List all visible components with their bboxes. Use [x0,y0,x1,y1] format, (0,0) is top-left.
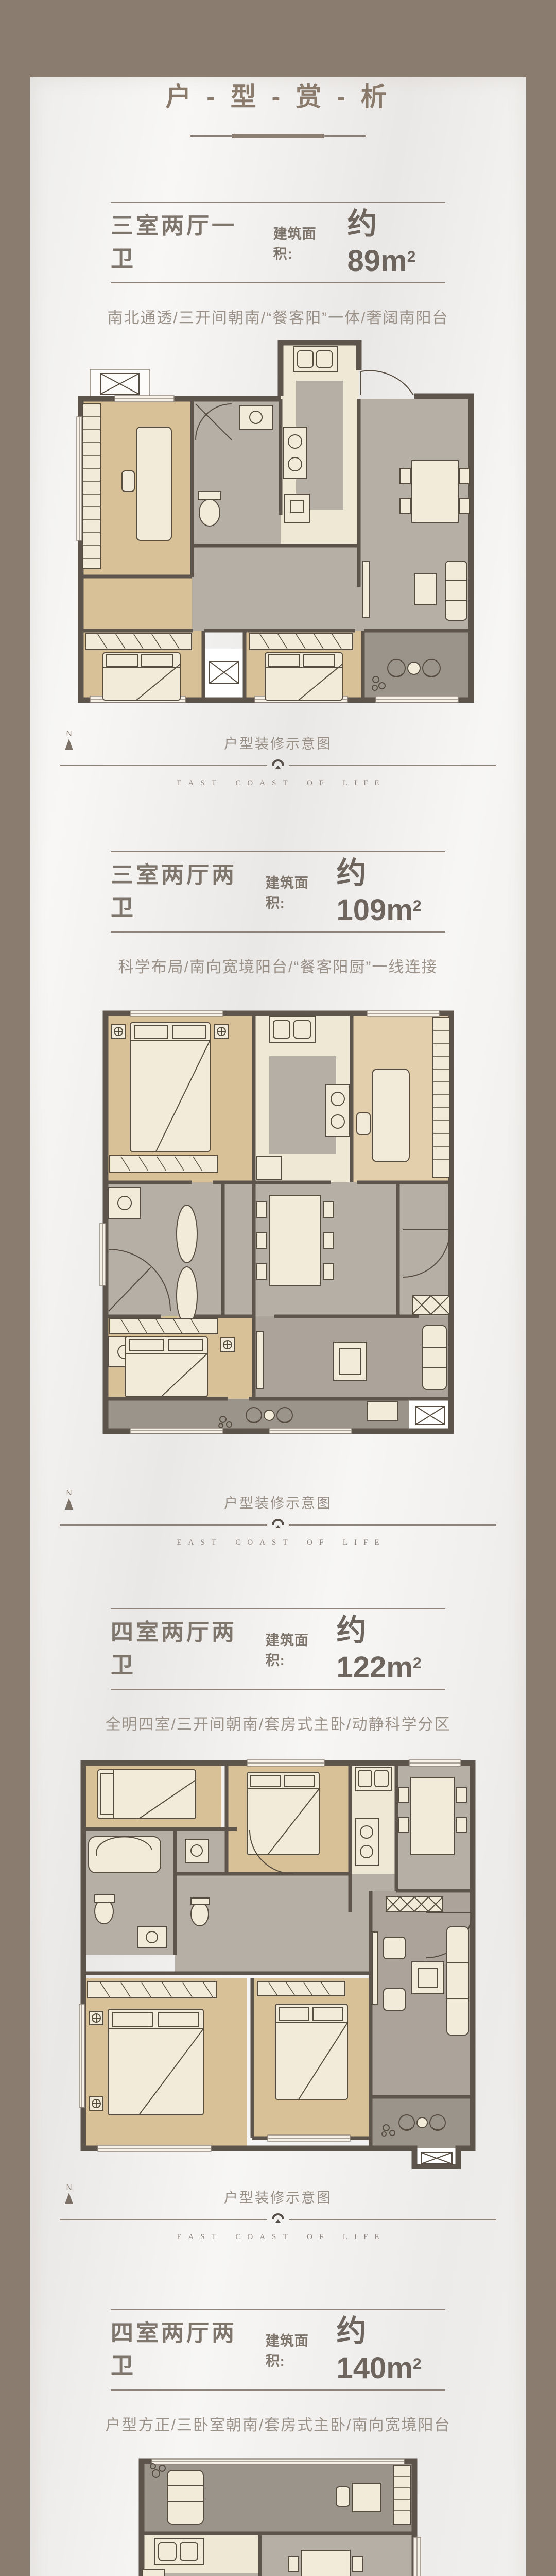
plan-caption: 户型装修示意图 [30,2190,526,2206]
caption-divider [60,1519,496,1531]
compass-north-icon: N [63,2183,75,2204]
floor-plan-122 [77,1757,479,2169]
title-divider [190,134,366,138]
plan-type-title: 三室两厅一卫 [111,210,262,276]
divider-line-left [60,765,267,766]
tagline: EAST COAST OF LIFE [30,778,526,788]
section-plan-109: 三室两厅两卫 建筑面积: 约109m2 科学布局/南向宽境阳台/“餐客阳厨”一线… [30,851,526,1548]
floor-plan-109-wrap [30,1007,526,1437]
area-superscript: 2 [413,1655,422,1672]
plan-caption: 户型装修示意图 [30,736,526,752]
section-header: 三室两厅一卫 建筑面积: 约89m2 [111,202,445,283]
plan-description: 全明四室/三开间朝南/套房式主卧/动静科学分区 [30,1716,526,1734]
plan-caption: 户型装修示意图 [30,1495,526,1512]
compass-label: N [63,2183,75,2192]
divider-thick-bar [232,134,324,138]
brand-mark-icon [270,759,286,772]
area-value: 约109m2 [336,857,445,927]
section-header: 三室两厅两卫 建筑面积: 约109m2 [111,851,445,933]
area-superscript: 2 [413,2355,422,2372]
section-header: 四室两厅两卫 建筑面积: 约140m2 [111,2309,445,2391]
tagline: EAST COAST OF LIFE [30,2232,526,2242]
poster-card: 户 - 型 - 赏 - 析 三室两厅一卫 建筑面积: 约89m2 南北通透/三开… [30,77,526,2576]
caption-divider [60,2213,496,2226]
area-label: 建筑面积: [273,223,336,263]
plan-description: 南北通透/三开间朝南/“餐客阳”一体/奢阔南阳台 [30,309,526,327]
floor-plan-89-wrap [30,340,526,703]
plan-caption-row: N 户型装修示意图 EAST COAST OF LIFE [30,2190,526,2242]
area-value: 约89m2 [347,208,445,278]
compass-north-icon: N [63,730,75,750]
plan-description: 科学布局/南向宽境阳台/“餐客阳厨”一线连接 [30,958,526,976]
plan-caption-row: N 户型装修示意图 EAST COAST OF LIFE [30,1495,526,1548]
floor-plan-140-wrap [30,2455,526,2576]
compass-arrow-icon [65,2193,73,2204]
poster: { "page": { "background_color": "#8a7c6f… [0,0,556,2576]
divider-line-right [289,1524,496,1526]
divider-line-right [289,765,496,766]
brand-mark-icon [270,2213,286,2226]
floor-plan-122-wrap [30,1757,526,2169]
brand-mark-icon [270,1519,286,1531]
section-plan-122: 四室两厅两卫 建筑面积: 约122m2 全明四室/三开间朝南/套房式主卧/动静科… [30,1608,526,2242]
section-plan-89: 三室两厅一卫 建筑面积: 约89m2 南北通透/三开间朝南/“餐客阳”一体/奢阔… [30,202,526,788]
area-value: 约140m2 [336,2315,445,2385]
divider-line-left [60,1524,267,1526]
plan-type-title: 四室两厅两卫 [111,1616,254,1682]
section-plan-140: 四室两厅两卫 建筑面积: 约140m2 户型方正/三卧室朝南/套房式主卧/南向宽… [30,2309,526,2576]
tagline: EAST COAST OF LIFE [30,1537,526,1548]
compass-label: N [63,730,75,738]
caption-divider [60,759,496,772]
plan-type-title: 三室两厅两卫 [111,859,254,925]
floor-plan-109 [99,1007,457,1437]
area-superscript: 2 [407,248,416,265]
area-label: 建筑面积: [266,872,325,912]
page-title: 户 - 型 - 赏 - 析 [30,77,526,110]
area-label: 建筑面积: [266,1629,325,1669]
plan-caption-row: N 户型装修示意图 EAST COAST OF LIFE [30,736,526,788]
compass-arrow-icon [65,739,73,750]
compass-label: N [63,1489,75,1497]
floor-plan-89 [75,340,481,703]
plan-type-title: 四室两厅两卫 [111,2317,254,2383]
area-value: 约122m2 [336,1614,445,1684]
divider-line-left [60,2219,267,2220]
plan-description: 户型方正/三卧室朝南/套房式主卧/南向宽境阳台 [30,2416,526,2434]
compass-north-icon: N [63,1489,75,1510]
area-superscript: 2 [413,897,422,914]
divider-line-right [289,2219,496,2220]
compass-arrow-icon [65,1498,73,1510]
floor-plan-140 [106,2455,450,2576]
area-label: 建筑面积: [266,2330,325,2370]
section-header: 四室两厅两卫 建筑面积: 约122m2 [111,1608,445,1690]
